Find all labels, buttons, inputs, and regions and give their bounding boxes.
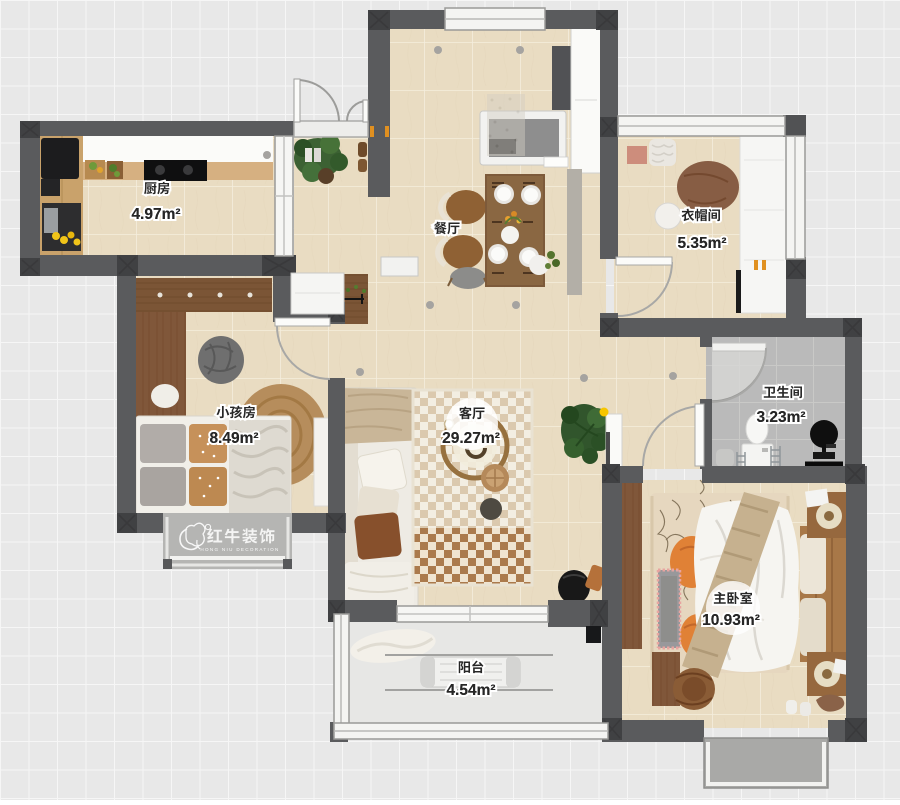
svg-text:29.27m²: 29.27m²: [442, 430, 500, 447]
svg-text:5.35m²: 5.35m²: [677, 235, 726, 252]
svg-text:HONG NIU DECORATION: HONG NIU DECORATION: [200, 547, 279, 552]
svg-text:10.93m²: 10.93m²: [702, 612, 760, 629]
svg-text:4.54m²: 4.54m²: [446, 682, 495, 699]
svg-text:3.23m²: 3.23m²: [756, 409, 805, 426]
svg-text:8.49m²: 8.49m²: [209, 430, 258, 447]
svg-text:4.97m²: 4.97m²: [131, 206, 180, 223]
